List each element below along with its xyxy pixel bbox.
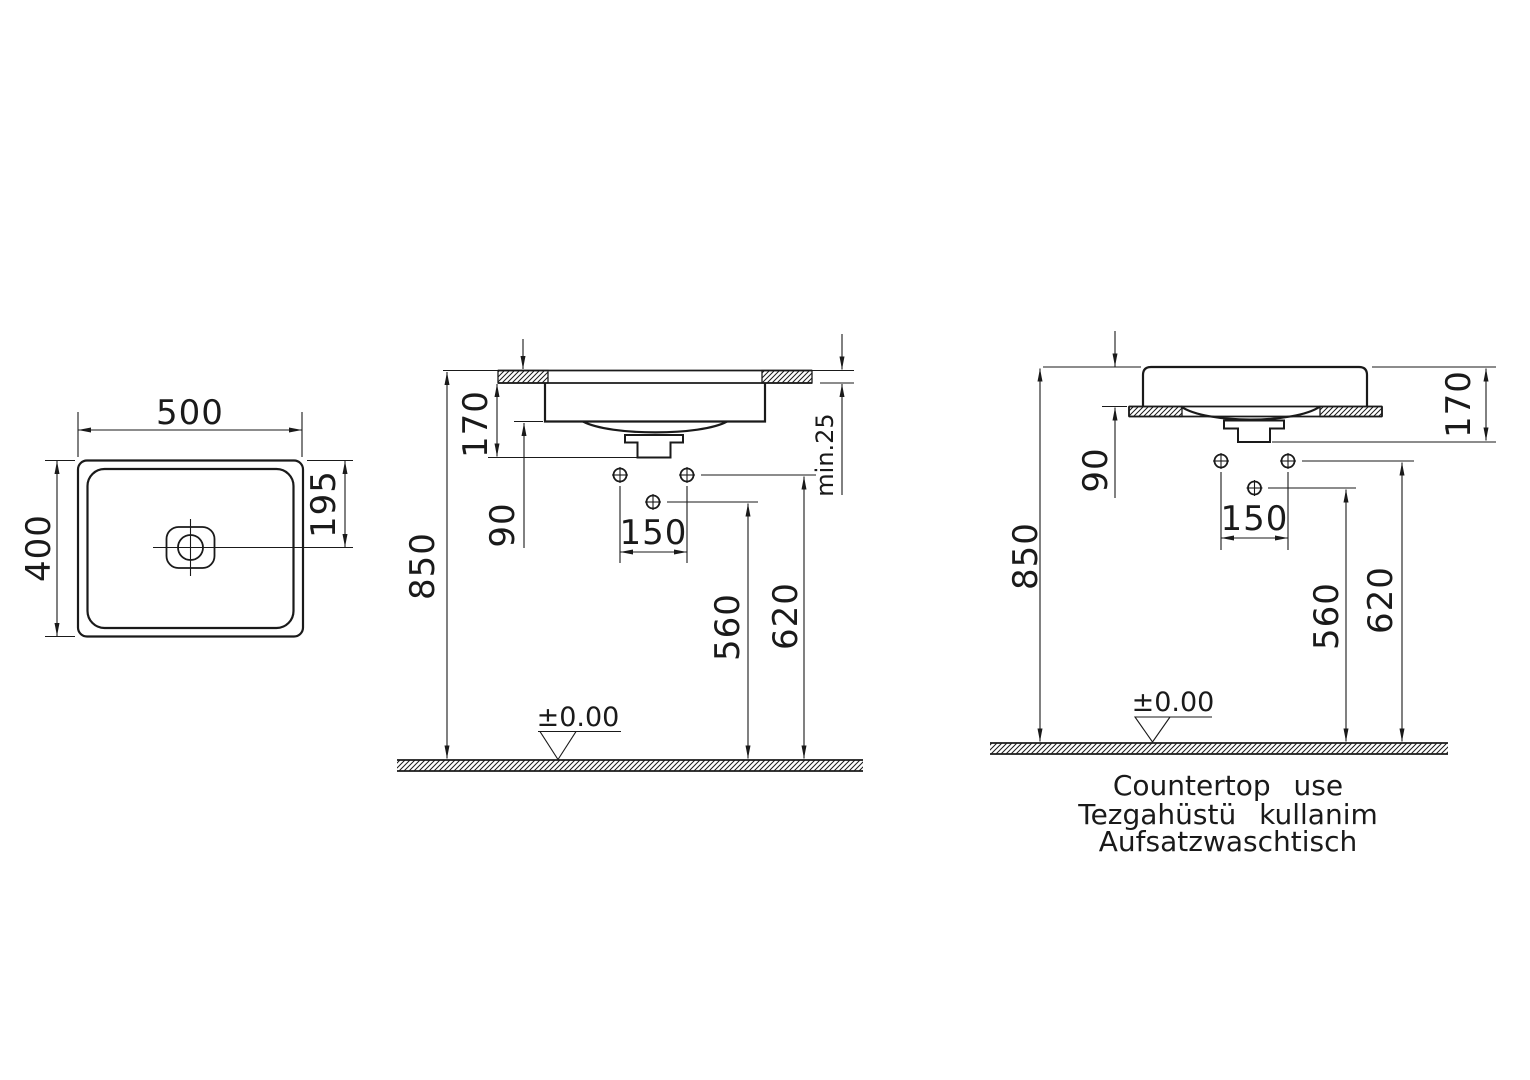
dim-150-label: 150	[1221, 499, 1289, 539]
dim-850-label: 850	[1006, 522, 1046, 590]
dim-90-label: 90	[1076, 447, 1116, 492]
dim-850-label: 850	[403, 532, 443, 600]
dim-620-label: 620	[1361, 566, 1401, 634]
dim-195-label: 195	[304, 470, 344, 538]
counter-cut-left	[1129, 407, 1182, 417]
floor-line	[397, 760, 863, 771]
dim-min25-label: min.25	[811, 413, 839, 496]
counter-cut-right	[1320, 407, 1382, 417]
dim-560-label: 560	[1307, 582, 1347, 650]
dim-170-label: 170	[456, 390, 496, 458]
dim-620-label: 620	[766, 582, 806, 650]
caption-de: Aufsatzwaschtisch	[1099, 825, 1357, 858]
dim-150-label: 150	[620, 513, 688, 553]
caption-block: Countertop use Tezgahüstü kullanim Aufsa…	[1077, 769, 1378, 858]
dim-170-label: 170	[1439, 370, 1479, 438]
dim-90-label: 90	[483, 502, 523, 547]
technical-drawing-page: 500 400 195	[0, 0, 1530, 1080]
counter-cut-right	[762, 371, 812, 384]
dim-560-label: 560	[708, 593, 748, 661]
sink-installation-drawing: 500 400 195	[0, 0, 1530, 1080]
dim-400-label: 400	[19, 514, 59, 582]
background	[0, 0, 1530, 1080]
datum-label: ±0.00	[537, 702, 620, 733]
counter-cut-left	[498, 371, 548, 384]
datum-label: ±0.00	[1132, 687, 1215, 718]
dim-500-label: 500	[156, 393, 224, 433]
floor-line	[990, 743, 1448, 754]
